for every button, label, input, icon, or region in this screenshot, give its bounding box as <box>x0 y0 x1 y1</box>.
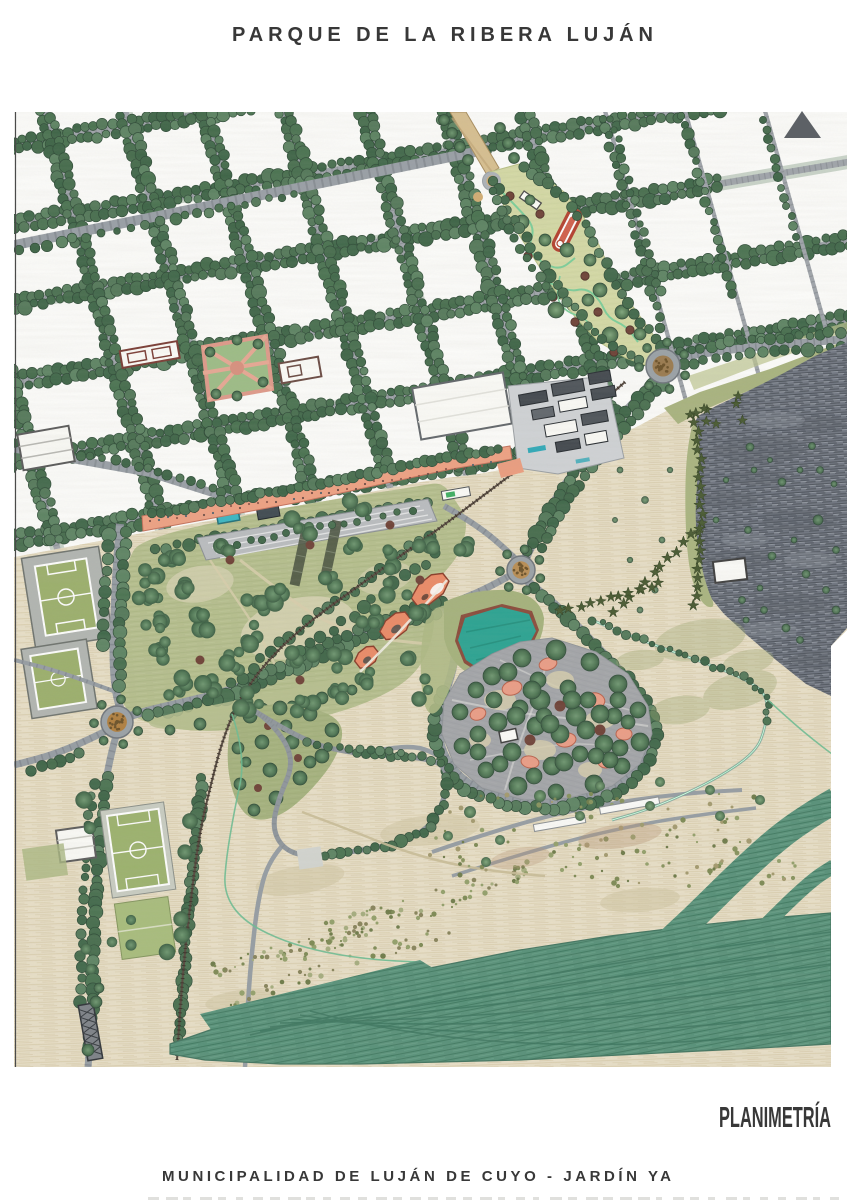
svg-text:PLANIMETRÍA: PLANIMETRÍA <box>719 1100 831 1134</box>
svg-text:PARQUE DE LA RIBERA LUJÁN: PARQUE DE LA RIBERA LUJÁN <box>232 23 653 46</box>
svg-text:MUNICIPALIDAD DE LUJÁN DE CUYO: MUNICIPALIDAD DE LUJÁN DE CUYO - JARDÍN … <box>162 1168 671 1185</box>
